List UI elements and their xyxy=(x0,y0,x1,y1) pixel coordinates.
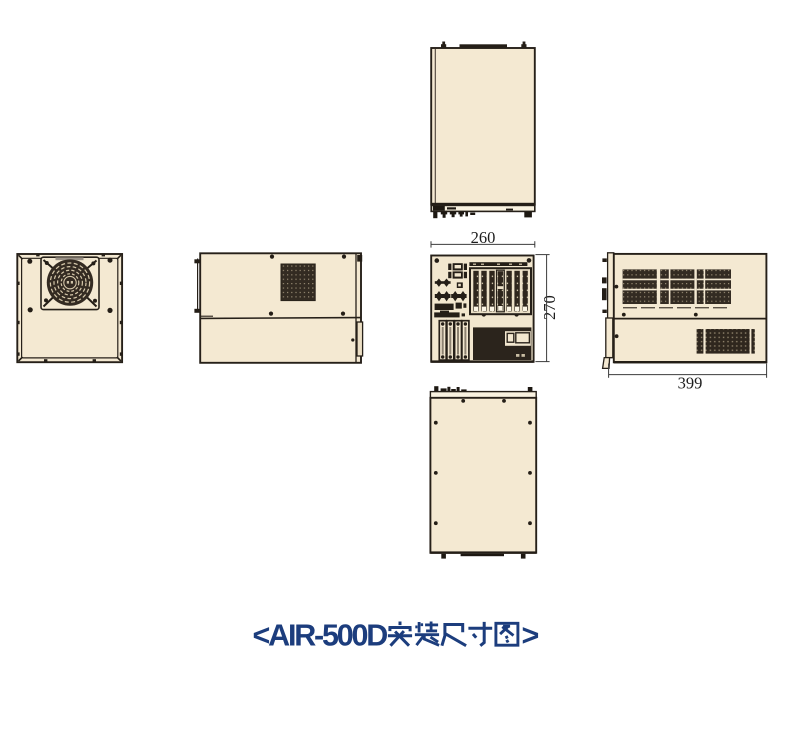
svg-text:>: > xyxy=(522,618,540,652)
svg-text:399: 399 xyxy=(678,374,703,393)
svg-text:270: 270 xyxy=(540,295,559,320)
svg-text:<AIR-500D: <AIR-500D xyxy=(253,618,388,652)
